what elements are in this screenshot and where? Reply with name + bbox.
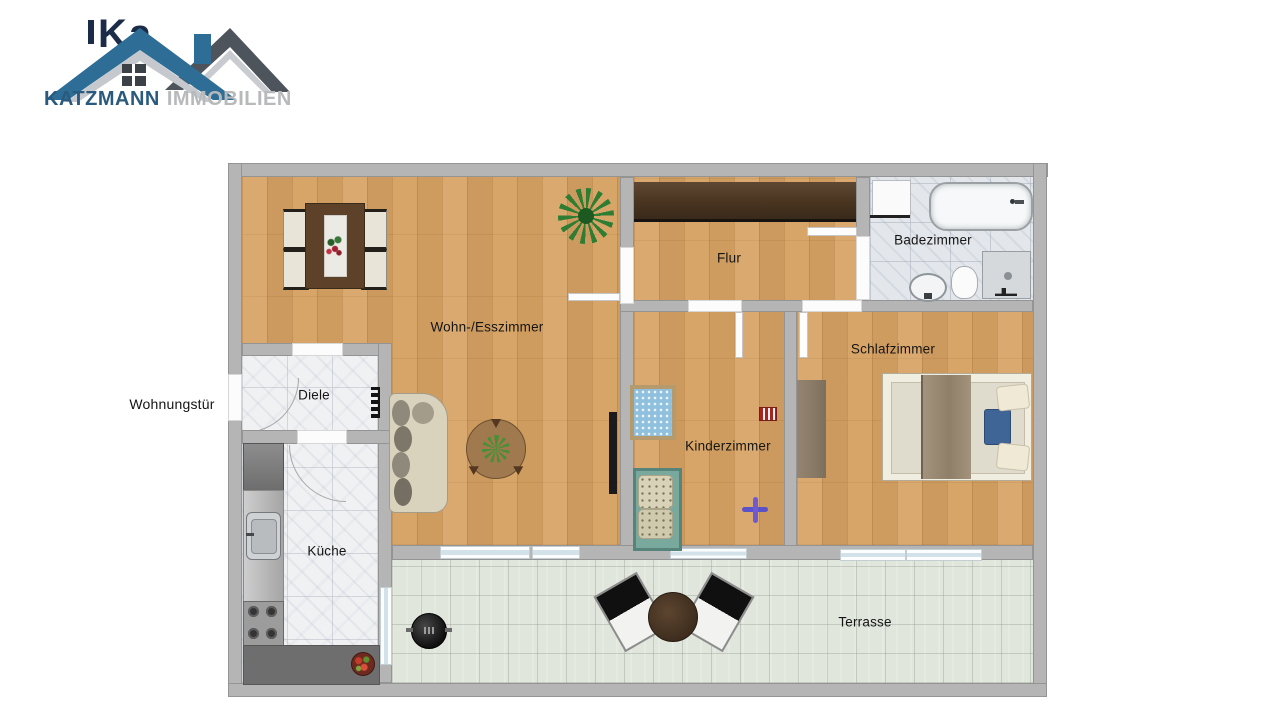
living-hallway-door (620, 247, 634, 304)
entrance-door-label: Wohnungstür (129, 396, 214, 412)
stove (243, 601, 284, 647)
bedroom-window-left (840, 549, 906, 561)
kids-room-label: Kinderzimmer (685, 439, 771, 454)
living-terrace-door (440, 546, 530, 559)
kids-room-door (688, 300, 742, 312)
coffee-table-plant (482, 435, 510, 463)
kitchen-label: Küche (307, 544, 346, 559)
tv-board (609, 412, 617, 494)
kids-bed-pillow (638, 509, 673, 539)
bedroom-window-right (906, 549, 982, 561)
bed-pillow (996, 442, 1031, 471)
washing-machine-front (870, 215, 910, 218)
kids-bed (633, 468, 682, 551)
hallway-wardrobe (634, 182, 856, 222)
wall-kids-bedroom (784, 307, 797, 560)
outer-wall-top (228, 163, 1048, 177)
floor-plan: Wohn-/Esszimmer Flur Badezimmer Schlafzi… (0, 0, 1280, 720)
dining-table (305, 203, 365, 289)
bedroom-door (802, 300, 862, 312)
bed-pillow (996, 383, 1030, 411)
washing-machine (872, 180, 911, 216)
coffee-table (466, 419, 526, 479)
play-pool (630, 385, 676, 440)
potted-plant (558, 188, 614, 244)
toy-plane (742, 497, 768, 523)
shower-fixture (995, 288, 1017, 296)
refrigerator (243, 443, 284, 492)
bedroom-rug (797, 380, 826, 478)
bathroom-sink (909, 273, 947, 302)
living-terrace-door-side (532, 546, 580, 559)
bathroom-label: Badezimmer (894, 233, 972, 248)
toilet (951, 266, 978, 299)
outer-wall-bottom (228, 683, 1047, 697)
shower (982, 251, 1031, 299)
bathtub (929, 182, 1033, 231)
outer-wall-left (228, 163, 242, 697)
toy-truck (759, 407, 777, 421)
hallway-label: Flur (717, 251, 741, 266)
bed-pillow-blue (984, 409, 1011, 445)
foyer-label: Diele (298, 388, 330, 403)
outer-wall-right (1033, 163, 1047, 697)
double-bed (882, 373, 1032, 481)
kids-bed-pillow (638, 475, 673, 509)
foyer-living-opening (292, 343, 343, 356)
bathroom-door-leaf (807, 227, 857, 236)
bathroom-door (856, 236, 870, 300)
kids-room-door-leaf (735, 312, 743, 358)
bedroom-label: Schlafzimmer (851, 342, 935, 357)
fruit-bowl (351, 652, 375, 676)
wall-living-hallway (620, 177, 634, 560)
bbq-grill (411, 613, 447, 649)
living-room-label: Wohn-/Esszimmer (430, 320, 543, 335)
coat-rack (371, 387, 380, 418)
foyer-kitchen-opening (297, 430, 347, 444)
table-flowers (324, 232, 344, 258)
terrace-label: Terrasse (838, 615, 891, 630)
kitchen-terrace-window (380, 587, 392, 665)
bed-blanket (921, 375, 971, 479)
kitchen-sink (246, 512, 281, 560)
bedroom-door-leaf (799, 312, 808, 358)
sofa (389, 393, 448, 513)
terrace-table (648, 592, 698, 642)
entrance-door (228, 374, 242, 421)
living-wall-stub (568, 293, 620, 301)
bathtub-faucet (1015, 200, 1024, 204)
